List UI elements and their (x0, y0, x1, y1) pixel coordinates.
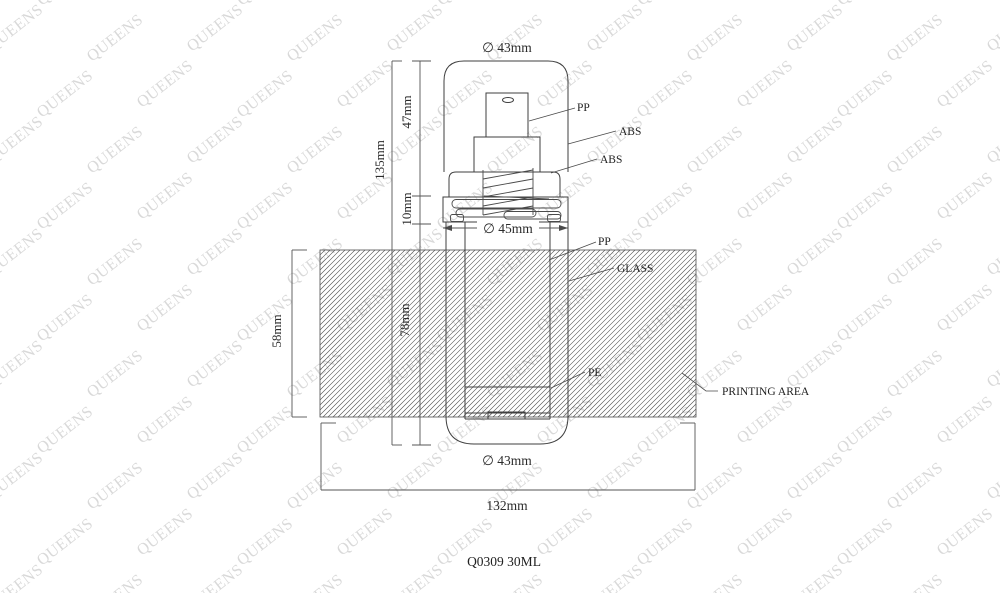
hatch-line (320, 250, 400, 330)
body-height-label: 78mm (397, 303, 412, 336)
hatch-line (693, 414, 696, 417)
material-label-overcap-abs: ABS (619, 126, 641, 138)
hatch-line (508, 250, 675, 417)
hatch-line (608, 329, 696, 417)
technical-drawing: ∅ 43mm 135mm 47mm 10mm 78mm 58mm ∅ 45mm … (0, 0, 1000, 593)
hatch-line (320, 250, 380, 310)
hatch-line (320, 250, 445, 375)
hatch-line (628, 349, 696, 417)
total-height-label: 135mm (372, 140, 387, 180)
hatch-line (613, 334, 696, 417)
hatch-line (488, 250, 655, 417)
drawing-title: Q0309 30ML (467, 554, 541, 569)
hatch-line (320, 250, 390, 320)
hatch-line (443, 250, 610, 417)
hatch-line (320, 250, 355, 285)
hatch-line (583, 304, 696, 417)
printing-area-label: PRINTING AREA (722, 386, 810, 398)
hatch-line (558, 279, 696, 417)
material-label-glass: GLASS (617, 263, 653, 275)
hatch-line (413, 250, 580, 417)
hatch-line (528, 250, 695, 417)
hatch-line (458, 250, 625, 417)
hatch-line (523, 250, 690, 417)
material-label-pe: PE (588, 367, 601, 379)
leader-lines (529, 108, 718, 391)
hatch-line (598, 319, 696, 417)
hatch-line (478, 250, 645, 417)
print-height-label: 58mm (269, 314, 284, 347)
hatch-line (563, 284, 696, 417)
neck-flange (443, 197, 568, 222)
hatch-line (648, 369, 696, 417)
overcap-outline (444, 61, 568, 172)
hatch-line (503, 250, 670, 417)
hatch-line (498, 250, 665, 417)
bottom-diameter-label: ∅ 43mm (482, 453, 532, 468)
hatch-line (433, 250, 600, 417)
hatch-line (388, 250, 555, 417)
hatch-line (593, 314, 696, 417)
hatch-line (483, 250, 650, 417)
hatch-line (320, 250, 345, 275)
material-label-actuator-pp: PP (577, 102, 590, 114)
hatch-line (578, 299, 696, 417)
pump-actuator (474, 93, 540, 172)
hatch-line (320, 250, 330, 260)
hatch-line (493, 250, 660, 417)
pe-insert (465, 387, 550, 413)
hatch-line (320, 250, 395, 325)
hatch-line (353, 250, 520, 417)
hatch-line (320, 250, 325, 255)
hatch-line (320, 250, 365, 295)
print-height-bracket (292, 250, 307, 417)
hatch-line (320, 250, 360, 290)
hatch-line (573, 294, 696, 417)
neck-height-label: 10mm (399, 192, 414, 225)
hatch-line (338, 250, 505, 417)
hatch-line (688, 409, 696, 417)
hatch-line (320, 250, 465, 395)
hatch-line (320, 250, 340, 270)
hatch-line (358, 250, 525, 417)
hatch-line (320, 250, 455, 385)
neck-diameter-label: ∅ 45mm (483, 221, 533, 236)
page: { "title": "Q0309 30ML", "watermark": { … (0, 0, 1000, 593)
hatch-line (548, 269, 696, 417)
hatch-line (320, 250, 440, 370)
hatch-line (333, 250, 500, 417)
hatch-line (320, 250, 450, 380)
hatch-line (320, 250, 385, 315)
hatch-line (533, 254, 696, 417)
hatch-pattern (320, 250, 696, 417)
hatch-line (513, 250, 680, 417)
top-diameter-label: ∅ 43mm (482, 40, 532, 55)
hatch-line (348, 250, 515, 417)
hatch-line (463, 250, 630, 417)
hatch-line (543, 264, 696, 417)
hatch-line (320, 250, 350, 280)
hatch-line (320, 250, 375, 305)
pump-height-label: 47mm (399, 95, 414, 128)
hatch-line (468, 250, 635, 417)
hatch-line (320, 250, 460, 390)
hatch-line (673, 394, 696, 417)
hatch-line (663, 384, 696, 417)
hatch-line (633, 354, 696, 417)
hatch-line (658, 379, 696, 417)
hatch-line (398, 250, 565, 417)
nozzle-hole (503, 98, 514, 103)
hatch-line (418, 250, 585, 417)
hatch-line (623, 344, 696, 417)
hatch-line (518, 250, 685, 417)
material-label-gasket-pp: PP (598, 236, 611, 248)
hatch-line (618, 339, 696, 417)
hatch-line (320, 250, 430, 360)
material-label-collar-abs: ABS (600, 154, 622, 166)
hatch-line (643, 364, 696, 417)
hatch-line (368, 250, 535, 417)
hatch-line (343, 250, 510, 417)
total-width-label: 132mm (486, 498, 528, 513)
hatch-line (393, 250, 560, 417)
hatch-line (453, 250, 620, 417)
hatch-line (678, 399, 696, 417)
hatch-line (588, 309, 696, 417)
hatch-line (428, 250, 595, 417)
hatch-line (683, 404, 696, 417)
hatch-line (438, 250, 605, 417)
hatch-line (423, 250, 590, 417)
hatch-line (320, 250, 425, 355)
hatch-line (473, 250, 640, 417)
hatch-line (403, 250, 570, 417)
